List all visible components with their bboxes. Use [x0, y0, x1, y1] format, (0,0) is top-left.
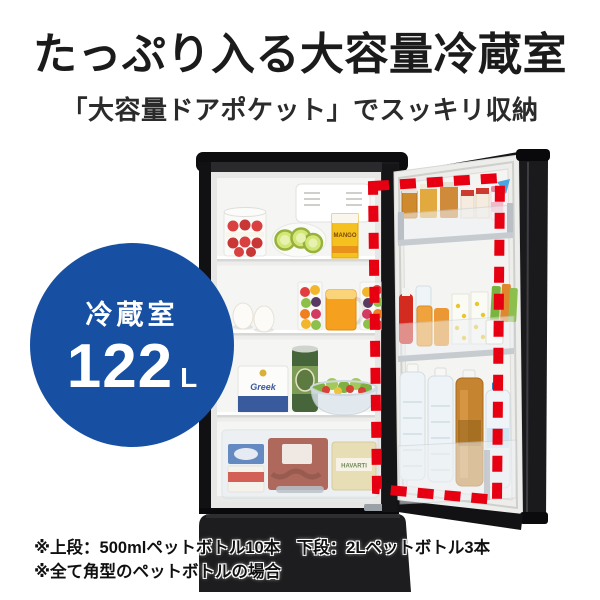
- capacity-badge: 冷蔵室 122 L: [30, 243, 234, 447]
- footnote-line-2: ※全て角型のペットボトルの場合: [34, 560, 574, 584]
- footnotes: ※上段：500mlペットボトル10本 下段：2Lペットボトル3本 ※全て角型のペ…: [34, 536, 574, 584]
- capacity-value-row: 122 L: [67, 336, 198, 398]
- capacity-value: 122: [67, 336, 173, 398]
- lime-slices-container: [272, 223, 326, 257]
- capacity-unit: L: [180, 362, 197, 394]
- product-feature-banner: { "header": { "title": "たっぷり入る大容量冷蔵室", "…: [0, 0, 600, 600]
- mango-juice-carton: MANGO: [332, 214, 358, 258]
- crisper-drawer: HAVARTI: [222, 430, 378, 498]
- banner-stage: たっぷり入る大容量冷蔵室 「大容量ドアポケット」でスッキリ収納: [0, 0, 600, 600]
- yogurt-tub-label: Greek: [250, 382, 277, 392]
- strawberries-container: [224, 208, 266, 258]
- yogurt-tub: Greek: [238, 366, 288, 412]
- footnote-line-1: ※上段：500mlペットボトル10本 下段：2Lペットボトル3本: [34, 536, 574, 560]
- mango-carton-label: MANGO: [334, 233, 357, 239]
- door-outer-edge: [519, 155, 548, 520]
- salad-bowl: [311, 378, 377, 415]
- fruit-glass-left: [298, 282, 322, 330]
- glass-shelf-middle: [217, 330, 375, 340]
- capacity-label: 冷蔵室: [86, 293, 179, 332]
